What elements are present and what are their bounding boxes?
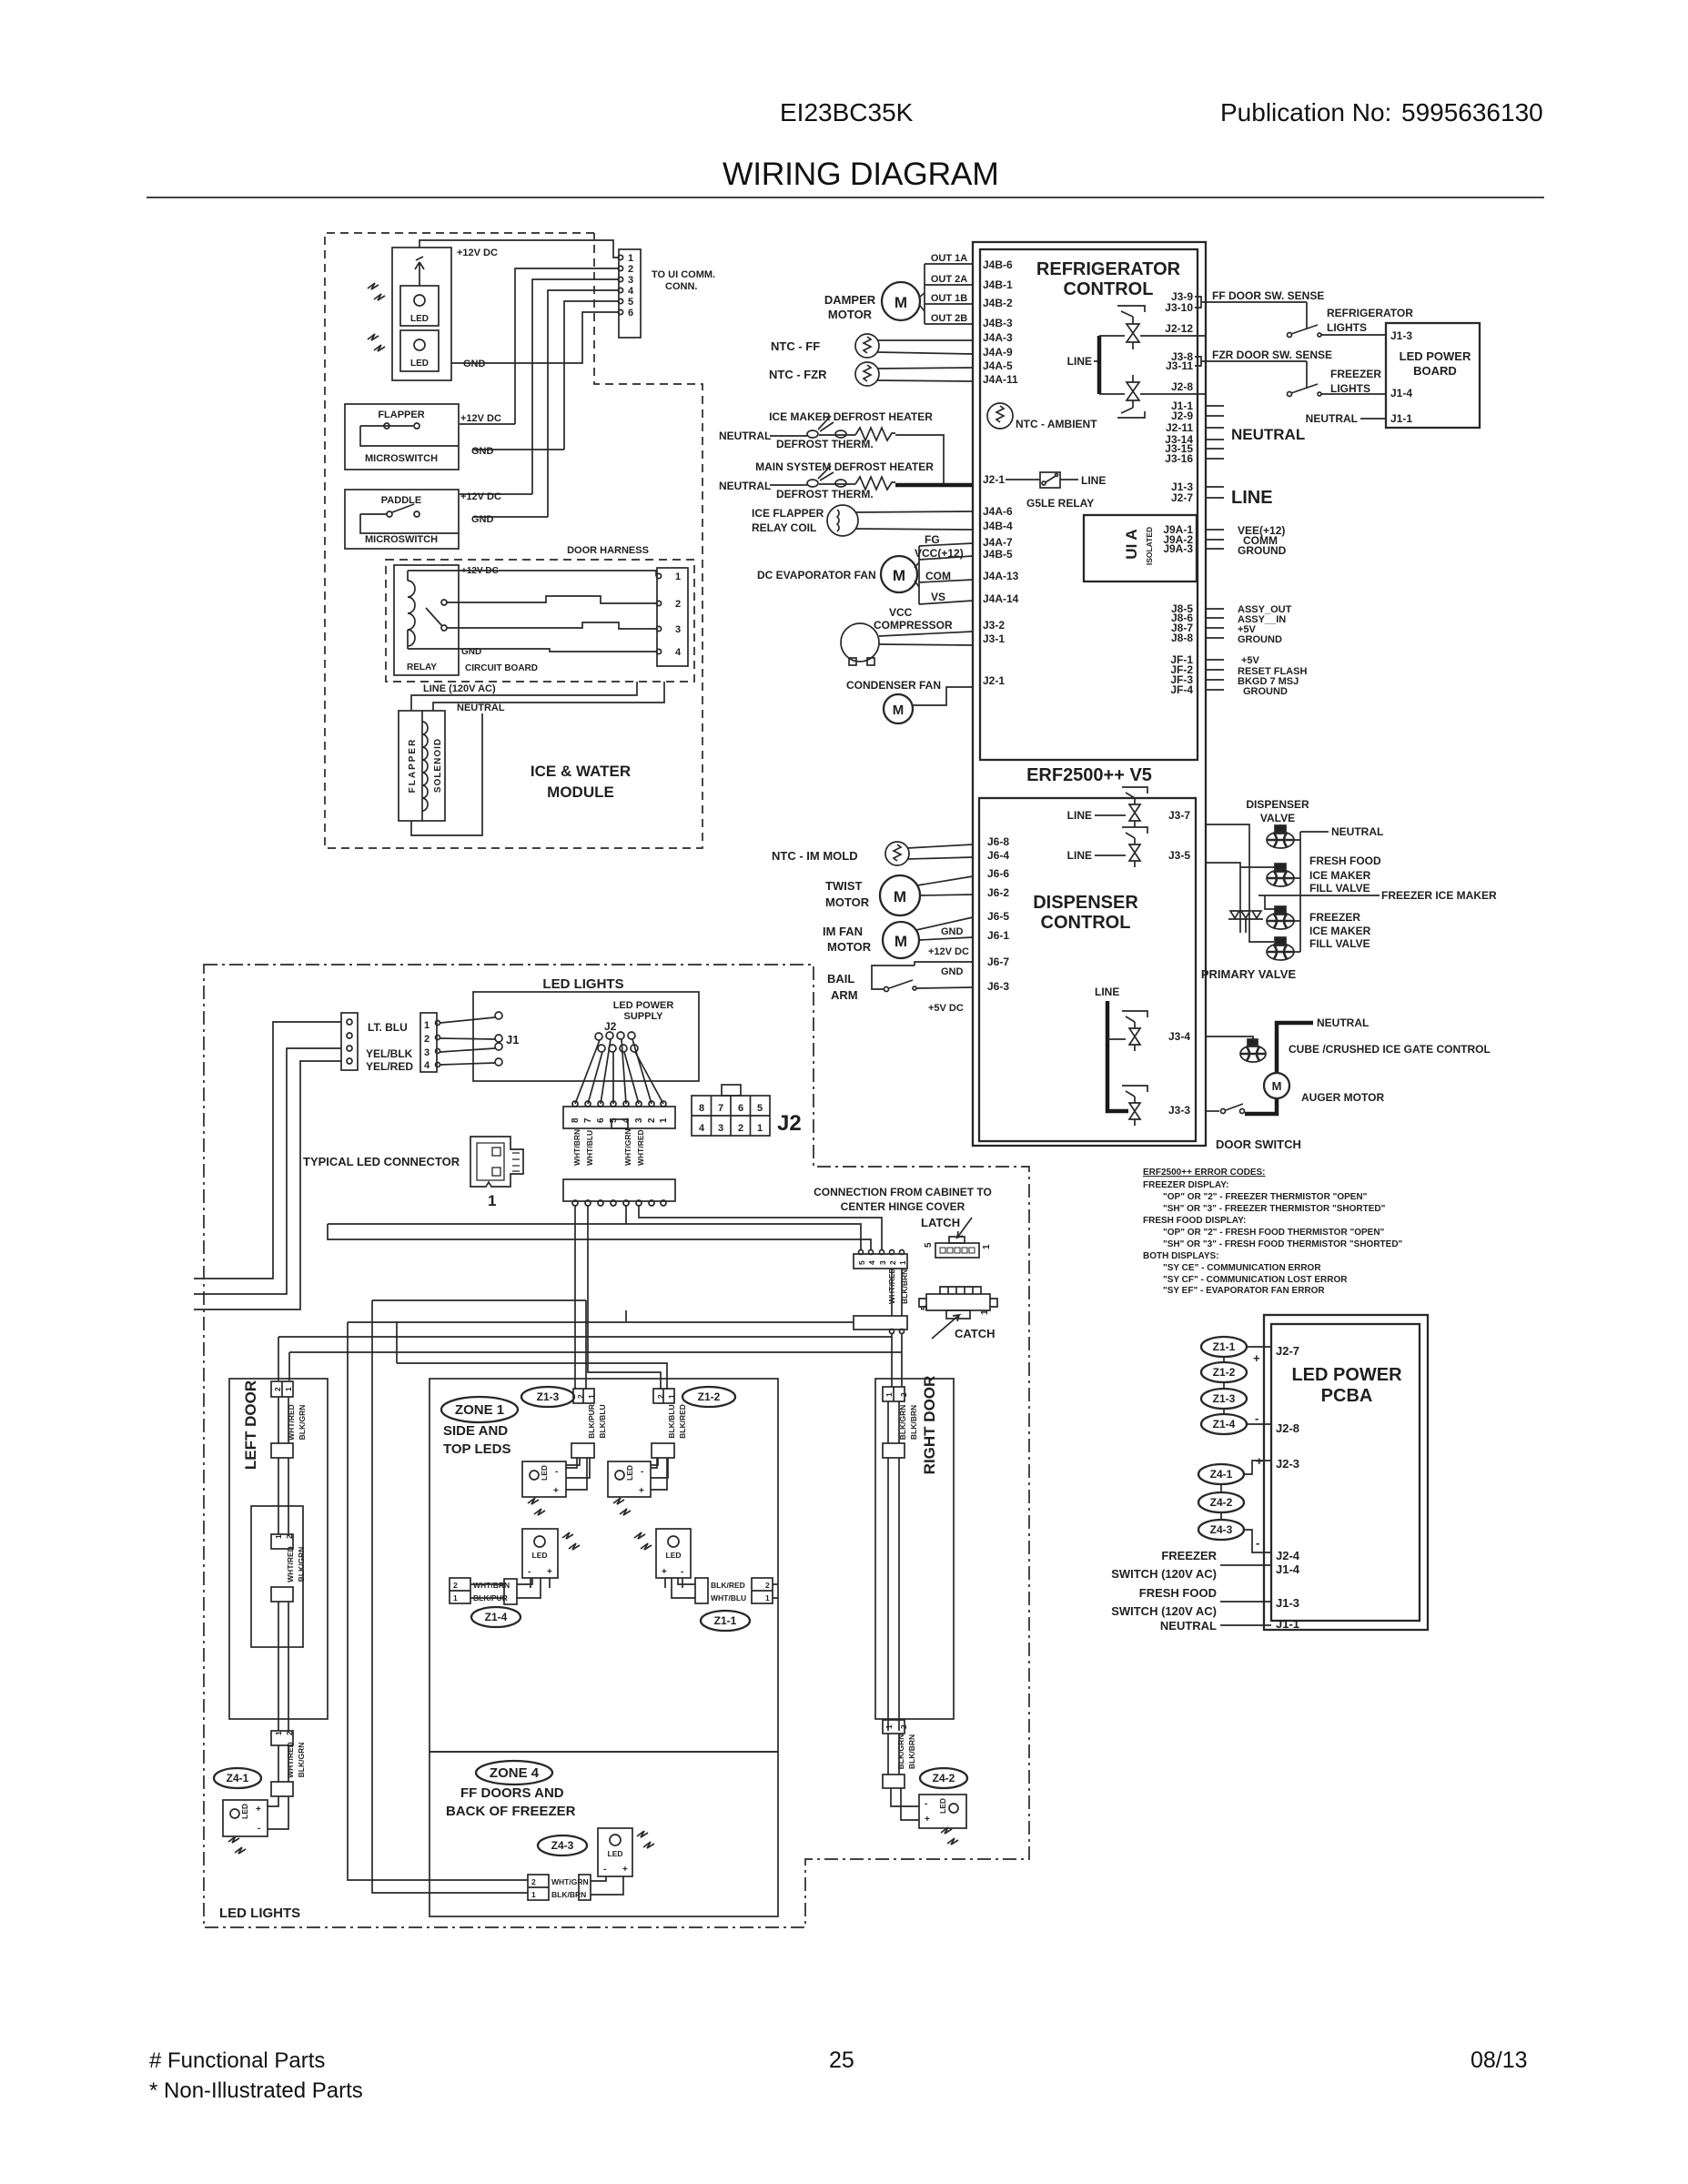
svg-text:JF-4: JF-4: [1170, 683, 1193, 696]
svg-text:1: 1: [488, 1192, 496, 1209]
svg-text:J3-1: J3-1: [983, 632, 1005, 645]
svg-text:8: 8: [699, 1103, 704, 1114]
svg-text:WHT/BLU: WHT/BLU: [711, 1593, 746, 1603]
svg-text:+: +: [662, 1567, 667, 1577]
svg-text:"SY CF" - COMMUNICATION LOST E: "SY CF" - COMMUNICATION LOST ERROR: [1163, 1275, 1348, 1285]
svg-text:BLK/BLU: BLK/BLU: [667, 1404, 676, 1438]
svg-text:J2: J2: [604, 1020, 617, 1033]
svg-text:TO UI COMM.: TO UI COMM.: [652, 269, 715, 280]
svg-text:GND: GND: [471, 446, 494, 457]
svg-text:M: M: [894, 888, 906, 905]
svg-text:LED: LED: [410, 314, 429, 324]
svg-text:ZONE 4: ZONE 4: [490, 1765, 540, 1781]
svg-text:VALVE: VALVE: [1260, 812, 1295, 824]
svg-text:LINE (120V AC): LINE (120V AC): [423, 683, 496, 694]
svg-text:J4B-3: J4B-3: [983, 317, 1013, 329]
svg-text:M: M: [895, 294, 907, 311]
svg-text:08/13: 08/13: [1471, 2047, 1528, 2073]
svg-text:BLK/GRN: BLK/GRN: [896, 1734, 905, 1770]
svg-text:OUT 1B: OUT 1B: [931, 293, 967, 304]
svg-text:1: 1: [274, 1534, 283, 1539]
svg-text:MOTOR: MOTOR: [825, 895, 870, 909]
svg-text:+: +: [639, 1486, 644, 1496]
svg-text:IM FAN: IM FAN: [823, 925, 863, 938]
svg-text:YEL/RED: YEL/RED: [366, 1060, 413, 1073]
svg-text:2: 2: [576, 1394, 585, 1399]
svg-text:2: 2: [675, 599, 681, 610]
svg-text:CONNECTION FROM CABINET TO: CONNECTION FROM CABINET TO: [814, 1186, 992, 1198]
svg-text:GROUND: GROUND: [1238, 544, 1287, 557]
svg-text:3: 3: [878, 1260, 887, 1265]
svg-text:-: -: [925, 1799, 927, 1809]
svg-text:FF DOOR SW. SENSE: FF DOOR SW. SENSE: [1212, 289, 1324, 302]
svg-text:-: -: [555, 1467, 558, 1477]
svg-text:NEUTRAL: NEUTRAL: [1306, 412, 1358, 425]
svg-text:1: 1: [531, 1890, 536, 1899]
svg-text:1: 1: [453, 1593, 458, 1603]
svg-text:EI23BC35K: EI23BC35K: [780, 98, 914, 126]
svg-text:J4B-6: J4B-6: [983, 258, 1013, 271]
svg-text:4: 4: [699, 1123, 705, 1134]
svg-text:Z4-1: Z4-1: [227, 1772, 249, 1785]
svg-text:Z1-3: Z1-3: [537, 1390, 560, 1403]
svg-text:J2-7: J2-7: [1171, 491, 1193, 504]
svg-text:1: 1: [659, 1117, 669, 1123]
svg-text:J2-3: J2-3: [1276, 1457, 1299, 1471]
svg-text:LED POWER: LED POWER: [1400, 349, 1471, 363]
svg-text:WHT/BRN: WHT/BRN: [572, 1129, 581, 1166]
svg-text:5: 5: [628, 297, 633, 308]
svg-text:LED: LED: [625, 1465, 634, 1481]
svg-text:GND: GND: [941, 966, 964, 977]
svg-text:ICE MAKER: ICE MAKER: [1309, 925, 1371, 937]
svg-text:GROUND: GROUND: [1243, 686, 1288, 697]
svg-text:J8-8: J8-8: [1171, 632, 1193, 644]
svg-text:WHT/RED: WHT/RED: [286, 1546, 295, 1582]
svg-text:YEL/BLK: YEL/BLK: [366, 1047, 413, 1060]
svg-text:NTC - FF: NTC - FF: [771, 339, 820, 353]
svg-text:1: 1: [898, 1260, 907, 1265]
svg-text:4: 4: [675, 647, 682, 658]
svg-text:BLK/GRN: BLK/GRN: [298, 1405, 307, 1441]
svg-text:DOOR SWITCH: DOOR SWITCH: [1216, 1137, 1301, 1151]
svg-text:J4A-6: J4A-6: [983, 505, 1013, 518]
svg-text:LED: LED: [532, 1551, 548, 1560]
svg-text:2: 2: [899, 1392, 908, 1397]
svg-text:J6-8: J6-8: [987, 835, 1009, 848]
svg-text:LINE: LINE: [1067, 849, 1092, 862]
svg-text:J2-11: J2-11: [1166, 421, 1193, 434]
svg-text:DISPENSER: DISPENSER: [1033, 893, 1138, 913]
svg-text:PCBA: PCBA: [1321, 1386, 1373, 1406]
svg-text:BAIL: BAIL: [827, 972, 854, 986]
svg-text:BACK OF FREEZER: BACK OF FREEZER: [446, 1804, 576, 1819]
svg-text:GND: GND: [471, 514, 494, 525]
svg-text:2: 2: [628, 264, 633, 275]
svg-text:WHT/GRN: WHT/GRN: [551, 1877, 589, 1886]
svg-text:FF DOORS AND: FF DOORS AND: [460, 1785, 564, 1801]
svg-text:"OP" OR "2" - FRESH FOOD THERM: "OP" OR "2" - FRESH FOOD THERMISTOR "OPE…: [1163, 1228, 1385, 1238]
svg-text:5: 5: [920, 1305, 930, 1310]
svg-text:J6-7: J6-7: [987, 955, 1009, 968]
svg-text:LED: LED: [938, 1798, 947, 1814]
svg-text:Z4-3: Z4-3: [551, 1839, 574, 1852]
svg-text:LINE: LINE: [1095, 986, 1119, 998]
svg-text:J4B-1: J4B-1: [983, 278, 1013, 291]
svg-text:RELAY: RELAY: [407, 662, 437, 672]
svg-text:M: M: [893, 703, 905, 718]
svg-text:LED LIGHTS: LED LIGHTS: [542, 976, 623, 992]
svg-text:COMPRESSOR: COMPRESSOR: [874, 619, 953, 632]
svg-text:VS: VS: [931, 591, 945, 603]
svg-text:LED: LED: [240, 1804, 249, 1819]
svg-text:FLAPPER: FLAPPER: [378, 409, 424, 420]
svg-text:LED: LED: [666, 1551, 682, 1560]
svg-text:J3-7: J3-7: [1168, 809, 1190, 822]
svg-text:FG: FG: [925, 533, 940, 546]
svg-text:MICROSWITCH: MICROSWITCH: [365, 534, 438, 545]
svg-text:4: 4: [867, 1260, 876, 1265]
svg-text:Z4-2: Z4-2: [933, 1772, 955, 1785]
svg-text:DC EVAPORATOR FAN: DC EVAPORATOR FAN: [757, 569, 876, 581]
svg-text:NEUTRAL: NEUTRAL: [1231, 426, 1305, 443]
svg-text:LED POWER: LED POWER: [1291, 1365, 1402, 1385]
svg-text:Z1-4: Z1-4: [1213, 1418, 1236, 1431]
svg-text:1: 1: [884, 1724, 894, 1729]
svg-text:DAMPER: DAMPER: [824, 293, 876, 307]
svg-text:BLK/GRN: BLK/GRN: [297, 1743, 306, 1778]
svg-text:J1-4: J1-4: [1276, 1562, 1300, 1576]
svg-text:SWITCH (120V AC): SWITCH (120V AC): [1111, 1567, 1217, 1581]
svg-text:NEUTRAL: NEUTRAL: [719, 430, 771, 442]
svg-text:REFRIGERATOR: REFRIGERATOR: [1036, 259, 1181, 279]
svg-text:2: 2: [647, 1117, 657, 1123]
svg-text:NEUTRAL: NEUTRAL: [457, 703, 505, 713]
svg-text:LINE: LINE: [1067, 809, 1092, 822]
svg-text:FREEZER: FREEZER: [1330, 368, 1381, 380]
svg-text:NTC - AMBIENT: NTC - AMBIENT: [1016, 418, 1097, 430]
svg-text:-: -: [681, 1567, 683, 1577]
svg-text:J2: J2: [777, 1111, 802, 1136]
svg-text:1: 1: [587, 1394, 596, 1399]
svg-text:J4A-3: J4A-3: [983, 331, 1013, 344]
svg-text:J9A-3: J9A-3: [1163, 542, 1193, 555]
svg-text:J1-3: J1-3: [1276, 1596, 1299, 1610]
svg-text:-: -: [1256, 1536, 1259, 1550]
svg-text:G5LE RELAY: G5LE RELAY: [1026, 497, 1094, 510]
svg-text:RIGHT DOOR: RIGHT DOOR: [921, 1376, 938, 1475]
svg-text:2: 2: [738, 1123, 743, 1134]
svg-text:FREEZER: FREEZER: [1309, 911, 1360, 924]
svg-text:J2-9: J2-9: [1171, 409, 1193, 422]
svg-text:FRESH FOOD: FRESH FOOD: [1309, 854, 1381, 867]
svg-text:OUT 2B: OUT 2B: [931, 313, 967, 324]
svg-text:ERF2500++ V5: ERF2500++ V5: [1026, 765, 1152, 785]
svg-text:"OP" OR "2" - FREEZER THERMIST: "OP" OR "2" - FREEZER THERMISTOR "OPEN": [1163, 1192, 1368, 1202]
svg-text:2: 2: [656, 1394, 665, 1399]
svg-text:CIRCUIT BOARD: CIRCUIT BOARD: [465, 663, 538, 673]
svg-text:1: 1: [667, 1394, 676, 1399]
svg-text:CONTROL: CONTROL: [1064, 279, 1154, 299]
svg-text:FILL VALVE: FILL VALVE: [1309, 937, 1370, 950]
svg-text:COM: COM: [925, 570, 951, 582]
svg-text:2: 2: [285, 1731, 294, 1735]
svg-text:+: +: [1253, 1351, 1260, 1365]
svg-text:3: 3: [718, 1123, 723, 1134]
svg-text:RELAY COIL: RELAY COIL: [752, 521, 816, 534]
svg-text:VCC(+12): VCC(+12): [915, 547, 964, 560]
svg-text:+5V: +5V: [1241, 655, 1260, 666]
svg-text:J4A-5: J4A-5: [983, 359, 1013, 372]
svg-text:CENTER HINGE COVER: CENTER HINGE COVER: [841, 1200, 965, 1213]
svg-text:UI A: UI A: [1123, 529, 1140, 559]
svg-text:MOTOR: MOTOR: [827, 940, 872, 954]
svg-text:"SY EF" - EVAPORATOR FAN ERROR: "SY EF" - EVAPORATOR FAN ERROR: [1163, 1286, 1325, 1296]
svg-text:MICROSWITCH: MICROSWITCH: [365, 453, 438, 464]
svg-text:MOTOR: MOTOR: [828, 308, 873, 321]
svg-text:Z1-3: Z1-3: [1213, 1392, 1236, 1405]
svg-text:+12V DC: +12V DC: [457, 248, 498, 258]
svg-text:5995636130: 5995636130: [1401, 98, 1543, 126]
svg-text:J6-3: J6-3: [987, 980, 1009, 993]
svg-text:2: 2: [424, 1034, 430, 1045]
svg-text:* Non-Illustrated Parts: * Non-Illustrated Parts: [149, 2078, 363, 2103]
svg-text:LATCH: LATCH: [921, 1216, 960, 1229]
svg-text:LEFT DOOR: LEFT DOOR: [242, 1380, 259, 1470]
svg-text:SOLENOID: SOLENOID: [433, 738, 443, 793]
svg-text:LT. BLU: LT. BLU: [368, 1021, 408, 1034]
svg-text:TYPICAL LED CONNECTOR: TYPICAL LED CONNECTOR: [303, 1155, 460, 1168]
svg-text:DISPENSER: DISPENSER: [1246, 798, 1309, 811]
svg-text:J1: J1: [506, 1033, 519, 1046]
svg-text:J4A-11: J4A-11: [983, 373, 1018, 386]
svg-text:Z1-1: Z1-1: [1213, 1340, 1236, 1353]
svg-text:2: 2: [765, 1581, 770, 1590]
svg-text:25: 25: [829, 2047, 854, 2073]
svg-text:LED: LED: [410, 359, 429, 369]
svg-text:6: 6: [596, 1117, 606, 1123]
svg-text:J2-4: J2-4: [1276, 1549, 1300, 1562]
svg-text:WHT/RED: WHT/RED: [636, 1129, 645, 1166]
svg-text:REFRIGERATOR: REFRIGERATOR: [1327, 307, 1413, 319]
svg-text:J6-6: J6-6: [987, 867, 1009, 880]
svg-text:WHT/BLU: WHT/BLU: [585, 1130, 594, 1166]
svg-text:J4B-2: J4B-2: [983, 297, 1013, 309]
svg-text:4: 4: [622, 1117, 632, 1123]
svg-text:LINE: LINE: [1231, 488, 1273, 508]
svg-text:CONDENSER FAN: CONDENSER FAN: [846, 679, 941, 692]
svg-text:J2-8: J2-8: [1276, 1421, 1299, 1435]
svg-text:8: 8: [571, 1117, 581, 1123]
svg-text:WIRING DIAGRAM: WIRING DIAGRAM: [723, 156, 998, 192]
svg-text:5: 5: [857, 1260, 866, 1265]
svg-text:J6-2: J6-2: [987, 886, 1009, 899]
svg-text:PRIMARY VALVE: PRIMARY VALVE: [1201, 967, 1297, 981]
svg-text:6: 6: [738, 1103, 743, 1114]
svg-text:SIDE AND: SIDE AND: [443, 1423, 508, 1439]
svg-text:BLK/RED: BLK/RED: [678, 1404, 687, 1439]
svg-text:4: 4: [424, 1060, 430, 1071]
svg-text:BOARD: BOARD: [1413, 364, 1457, 378]
svg-text:"SH" OR "3" - FRESH FOOD THERM: "SH" OR "3" - FRESH FOOD THERMISTOR "SHO…: [1163, 1239, 1403, 1249]
svg-text:-: -: [1255, 1411, 1258, 1425]
svg-text:NEUTRAL: NEUTRAL: [1317, 1016, 1369, 1029]
svg-text:+12V DC: +12V DC: [460, 413, 501, 424]
svg-text:BLK/BLU: BLK/BLU: [598, 1404, 607, 1438]
svg-text:BLK/GRN: BLK/GRN: [297, 1547, 306, 1582]
svg-text:BLK/BRN: BLK/BRN: [551, 1890, 586, 1899]
svg-text:Z1-1: Z1-1: [714, 1614, 737, 1627]
svg-text:J1-1: J1-1: [1390, 412, 1412, 425]
svg-text:NEUTRAL: NEUTRAL: [1331, 825, 1383, 838]
svg-text:+: +: [547, 1567, 552, 1577]
svg-text:SWITCH (120V AC): SWITCH (120V AC): [1111, 1604, 1217, 1618]
svg-text:2: 2: [888, 1260, 897, 1265]
svg-text:-: -: [603, 1865, 606, 1875]
svg-text:+: +: [553, 1486, 559, 1496]
svg-text:PADDLE: PADDLE: [381, 495, 421, 506]
svg-text:J3-10: J3-10: [1165, 301, 1193, 314]
svg-text:5: 5: [609, 1117, 619, 1123]
svg-text:NEUTRAL: NEUTRAL: [719, 480, 771, 492]
svg-text:LED: LED: [540, 1465, 549, 1481]
svg-text:-: -: [258, 1824, 260, 1834]
svg-text:J3-4: J3-4: [1168, 1030, 1190, 1043]
svg-text:2: 2: [899, 1724, 908, 1729]
svg-text:FILL VALVE: FILL VALVE: [1309, 882, 1370, 895]
svg-text:J1-3: J1-3: [1390, 329, 1412, 342]
svg-text:J6-4: J6-4: [987, 849, 1009, 862]
svg-text:J3-11: J3-11: [1166, 359, 1193, 372]
svg-text:WHT/GRN: WHT/GRN: [623, 1128, 632, 1166]
svg-text:J4B-4: J4B-4: [983, 520, 1013, 532]
svg-text:NTC - IM MOLD: NTC - IM MOLD: [772, 849, 858, 863]
svg-text:VCC: VCC: [889, 606, 913, 619]
svg-text:3: 3: [675, 624, 681, 635]
svg-text:# Functional Parts: # Functional Parts: [149, 2048, 325, 2073]
svg-text:1: 1: [424, 1020, 430, 1031]
svg-text:TOP LEDS: TOP LEDS: [443, 1441, 510, 1457]
svg-text:J6-5: J6-5: [987, 910, 1009, 923]
svg-text:ICE MAKER: ICE MAKER: [1309, 869, 1371, 882]
svg-text:LED POWER: LED POWER: [613, 1000, 674, 1011]
svg-text:LINE: LINE: [1081, 474, 1106, 487]
svg-text:J2-8: J2-8: [1171, 380, 1193, 393]
svg-text:1: 1: [675, 571, 681, 582]
svg-text:ERF2500++ ERROR CODES:: ERF2500++ ERROR CODES:: [1143, 1168, 1266, 1178]
svg-text:FRESH FOOD: FRESH FOOD: [1139, 1586, 1217, 1600]
svg-text:J1-1: J1-1: [1276, 1617, 1299, 1631]
svg-text:FRESH FOOD DISPLAY:: FRESH FOOD DISPLAY:: [1143, 1216, 1246, 1226]
svg-text:DEFROST THERM.: DEFROST THERM.: [776, 438, 874, 450]
svg-text:ISOLATED: ISOLATED: [1145, 527, 1154, 565]
svg-text:BLK/RED: BLK/RED: [711, 1581, 745, 1590]
svg-text:LIGHTS: LIGHTS: [1327, 321, 1367, 334]
svg-text:GND: GND: [463, 359, 486, 369]
svg-text:5: 5: [924, 1242, 934, 1248]
svg-text:1: 1: [284, 1387, 293, 1391]
svg-text:+12V DC: +12V DC: [928, 946, 969, 957]
svg-text:SUPPLY: SUPPLY: [623, 1011, 663, 1022]
svg-text:Publication No:: Publication No:: [1220, 98, 1391, 126]
svg-text:+12V DC: +12V DC: [460, 491, 501, 502]
svg-text:BOTH DISPLAYS:: BOTH DISPLAYS:: [1143, 1251, 1219, 1261]
svg-text:3: 3: [634, 1117, 644, 1123]
svg-text:1: 1: [982, 1244, 992, 1249]
svg-text:ICE & WATER: ICE & WATER: [531, 763, 631, 780]
svg-text:Z4-1: Z4-1: [1210, 1468, 1233, 1481]
svg-text:LINE: LINE: [1067, 355, 1092, 368]
svg-text:J6-1: J6-1: [987, 929, 1009, 942]
svg-text:J4A-13: J4A-13: [983, 570, 1019, 582]
svg-text:Z1-2: Z1-2: [1213, 1366, 1236, 1379]
svg-text:DEFROST THERM.: DEFROST THERM.: [776, 488, 874, 500]
svg-text:CUBE /CRUSHED ICE GATE CONTROL: CUBE /CRUSHED ICE GATE CONTROL: [1289, 1043, 1491, 1056]
svg-text:1: 1: [757, 1123, 763, 1134]
svg-text:WHT/RED: WHT/RED: [286, 1742, 295, 1778]
svg-text:J2-1: J2-1: [983, 473, 1005, 486]
svg-text:Z1-4: Z1-4: [485, 1611, 508, 1623]
svg-text:BLK/PUR: BLK/PUR: [587, 1404, 596, 1439]
svg-text:J2-1: J2-1: [983, 674, 1005, 687]
svg-text:FLAPPER: FLAPPER: [408, 738, 418, 794]
svg-text:OUT 2A: OUT 2A: [931, 274, 967, 285]
svg-text:1: 1: [628, 253, 633, 264]
svg-text:5: 5: [757, 1103, 763, 1114]
svg-text:CATCH: CATCH: [955, 1327, 996, 1340]
svg-text:FREEZER ICE MAKER: FREEZER ICE MAKER: [1381, 889, 1497, 902]
svg-text:1: 1: [980, 1309, 990, 1315]
svg-text:3: 3: [628, 275, 633, 286]
svg-text:Z4-3: Z4-3: [1210, 1523, 1233, 1536]
svg-text:FREEZER: FREEZER: [1161, 1549, 1217, 1562]
svg-text:J4A-9: J4A-9: [983, 346, 1013, 359]
svg-text:GROUND: GROUND: [1238, 634, 1282, 645]
svg-text:OUT 1A: OUT 1A: [931, 253, 967, 264]
svg-text:NEUTRAL: NEUTRAL: [1160, 1619, 1217, 1633]
svg-text:AUGER MOTOR: AUGER MOTOR: [1301, 1091, 1384, 1104]
svg-text:1: 1: [274, 1731, 283, 1735]
svg-text:M: M: [895, 933, 907, 950]
svg-text:BLK/BRN: BLK/BRN: [909, 1405, 918, 1440]
svg-text:M: M: [893, 567, 905, 584]
svg-text:M: M: [1272, 1079, 1282, 1093]
svg-text:BLK/BRN: BLK/BRN: [907, 1734, 916, 1769]
svg-text:TWIST: TWIST: [825, 879, 862, 893]
svg-text:ARM: ARM: [831, 988, 858, 1002]
svg-text:J3-2: J3-2: [983, 619, 1005, 632]
svg-text:CONTROL: CONTROL: [1041, 913, 1131, 933]
svg-text:4: 4: [628, 286, 634, 297]
svg-text:NTC - FZR: NTC - FZR: [769, 368, 827, 381]
svg-text:LED: LED: [608, 1849, 623, 1858]
svg-text:7: 7: [583, 1117, 593, 1123]
svg-text:FREEZER DISPLAY:: FREEZER DISPLAY:: [1143, 1180, 1228, 1190]
svg-text:DOOR HARNESS: DOOR HARNESS: [567, 545, 649, 556]
svg-text:+: +: [622, 1865, 628, 1875]
svg-text:+5V DC: +5V DC: [928, 1003, 964, 1014]
svg-text:+: +: [256, 1805, 261, 1815]
svg-text:3: 3: [424, 1047, 430, 1058]
svg-text:MAIN SYSTEM DEFROST HEATER: MAIN SYSTEM DEFROST HEATER: [755, 460, 934, 473]
svg-text:J3-16: J3-16: [1165, 452, 1193, 465]
svg-text:J3-5: J3-5: [1168, 849, 1190, 862]
svg-text:GND: GND: [941, 926, 964, 937]
svg-text:J3-3: J3-3: [1168, 1104, 1190, 1117]
svg-text:LED LIGHTS: LED LIGHTS: [219, 1906, 300, 1921]
svg-text:2: 2: [531, 1877, 536, 1886]
svg-text:J4B-5: J4B-5: [983, 548, 1013, 561]
